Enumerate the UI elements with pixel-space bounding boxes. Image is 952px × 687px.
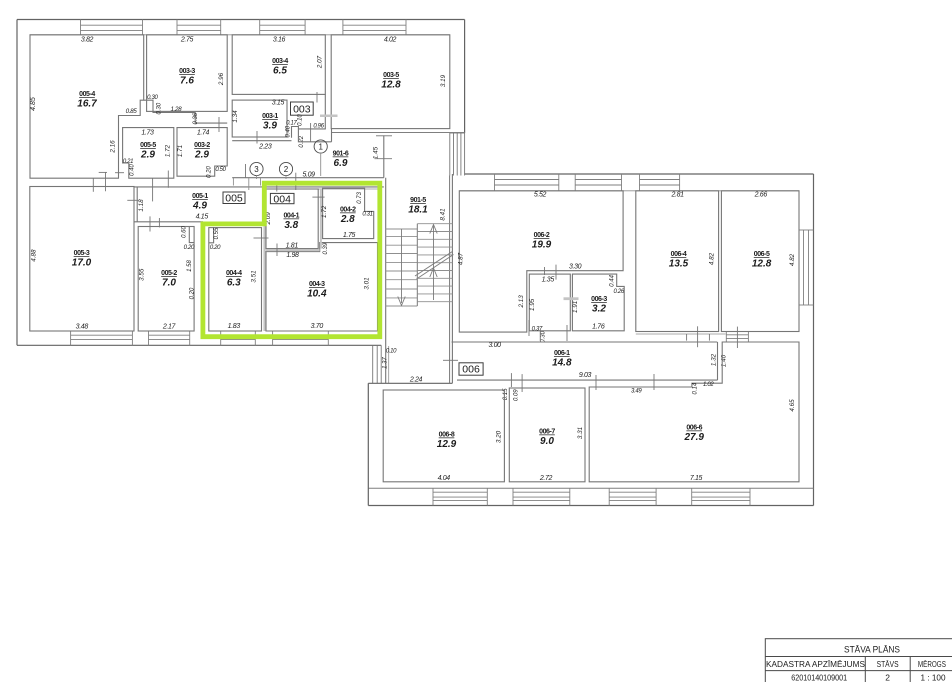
svg-text:5.09: 5.09 bbox=[302, 172, 315, 179]
svg-text:005-4: 005-4 bbox=[79, 91, 95, 98]
svg-text:STĀVA PLĀNS: STĀVA PLĀNS bbox=[844, 645, 900, 656]
svg-text:1.91: 1.91 bbox=[572, 301, 579, 313]
svg-text:1.74: 1.74 bbox=[197, 130, 210, 137]
svg-text:006-7: 006-7 bbox=[539, 429, 555, 436]
svg-text:0.20: 0.20 bbox=[184, 245, 195, 251]
svg-text:0.60: 0.60 bbox=[182, 226, 188, 238]
svg-text:006: 006 bbox=[462, 364, 480, 376]
svg-text:2.13: 2.13 bbox=[518, 295, 525, 309]
svg-text:0.85: 0.85 bbox=[126, 108, 138, 115]
svg-text:2.81: 2.81 bbox=[670, 192, 684, 199]
svg-text:4.9: 4.9 bbox=[192, 200, 207, 211]
svg-text:1.95: 1.95 bbox=[529, 298, 536, 311]
svg-text:003-4: 003-4 bbox=[272, 58, 288, 65]
svg-text:003: 003 bbox=[293, 103, 311, 115]
svg-text:1.73: 1.73 bbox=[141, 130, 154, 137]
svg-text:1.81: 1.81 bbox=[286, 243, 299, 250]
svg-text:2.9: 2.9 bbox=[140, 149, 155, 160]
svg-text:0.20: 0.20 bbox=[210, 245, 221, 251]
svg-text:003-2: 003-2 bbox=[194, 142, 210, 149]
svg-text:0.36: 0.36 bbox=[193, 112, 199, 124]
svg-text:1.58: 1.58 bbox=[187, 260, 193, 272]
svg-text:1.28: 1.28 bbox=[170, 106, 182, 113]
svg-text:2.66: 2.66 bbox=[754, 192, 768, 199]
svg-text:0.40: 0.40 bbox=[130, 164, 136, 176]
svg-text:4.65: 4.65 bbox=[789, 399, 796, 412]
svg-text:16.7: 16.7 bbox=[77, 98, 97, 109]
svg-text:901-5: 901-5 bbox=[410, 197, 426, 204]
svg-text:17.0: 17.0 bbox=[72, 257, 92, 268]
svg-text:KADASTRA APZĪMĒJUMS: KADASTRA APZĪMĒJUMS bbox=[766, 660, 865, 669]
svg-text:4.02: 4.02 bbox=[384, 37, 397, 44]
svg-text:MĒROGS: MĒROGS bbox=[918, 660, 946, 669]
svg-text:3.48: 3.48 bbox=[76, 323, 89, 330]
svg-text:4.04: 4.04 bbox=[438, 475, 451, 482]
svg-text:4.87: 4.87 bbox=[458, 252, 465, 265]
svg-text:62010140109001: 62010140109001 bbox=[791, 672, 847, 682]
svg-text:1.72: 1.72 bbox=[165, 144, 172, 157]
svg-text:1.02: 1.02 bbox=[703, 382, 714, 388]
svg-text:12.8: 12.8 bbox=[381, 79, 401, 90]
svg-text:3: 3 bbox=[254, 165, 259, 174]
svg-text:2.17: 2.17 bbox=[162, 323, 177, 330]
svg-text:3.00: 3.00 bbox=[488, 342, 501, 349]
svg-text:003-5: 003-5 bbox=[383, 72, 399, 79]
svg-text:4.88: 4.88 bbox=[30, 249, 37, 262]
svg-text:004: 004 bbox=[273, 193, 291, 205]
svg-text:003-1: 003-1 bbox=[262, 113, 278, 120]
svg-text:901-6: 901-6 bbox=[333, 151, 349, 158]
svg-text:1.34: 1.34 bbox=[232, 110, 239, 123]
svg-text:2.9: 2.9 bbox=[194, 149, 209, 160]
svg-text:3.16: 3.16 bbox=[273, 37, 286, 44]
svg-text:0.30: 0.30 bbox=[540, 330, 546, 342]
svg-text:1.18: 1.18 bbox=[138, 199, 145, 212]
svg-text:3.19: 3.19 bbox=[440, 74, 447, 87]
svg-text:003-3: 003-3 bbox=[179, 68, 195, 75]
svg-text:006-1: 006-1 bbox=[554, 350, 570, 357]
svg-text:6.9: 6.9 bbox=[334, 158, 348, 169]
svg-text:3.8: 3.8 bbox=[284, 220, 298, 231]
svg-text:0.20: 0.20 bbox=[207, 166, 213, 178]
svg-text:0.31: 0.31 bbox=[362, 211, 372, 217]
svg-text:3.30: 3.30 bbox=[569, 264, 582, 271]
svg-text:005: 005 bbox=[225, 192, 243, 204]
svg-text:9.0: 9.0 bbox=[540, 436, 554, 447]
svg-text:1.76: 1.76 bbox=[592, 324, 605, 331]
svg-text:004-4: 004-4 bbox=[226, 270, 242, 277]
svg-text:3.01: 3.01 bbox=[364, 277, 371, 289]
svg-text:13.5: 13.5 bbox=[669, 258, 689, 269]
svg-text:4.82: 4.82 bbox=[789, 253, 796, 266]
svg-text:2.16: 2.16 bbox=[110, 140, 117, 154]
svg-text:004-1: 004-1 bbox=[283, 213, 299, 220]
svg-text:1.37: 1.37 bbox=[383, 357, 389, 369]
svg-text:10.4: 10.4 bbox=[307, 288, 327, 299]
svg-text:18.1: 18.1 bbox=[408, 204, 428, 215]
svg-text:7.6: 7.6 bbox=[180, 75, 194, 86]
svg-text:006-2: 006-2 bbox=[534, 232, 550, 239]
svg-text:0.17: 0.17 bbox=[286, 120, 297, 126]
svg-text:0.55: 0.55 bbox=[214, 227, 220, 239]
svg-text:3.31: 3.31 bbox=[577, 427, 584, 439]
svg-text:STĀVS: STĀVS bbox=[877, 660, 899, 669]
svg-text:1.71: 1.71 bbox=[177, 145, 184, 157]
svg-text:0.30: 0.30 bbox=[147, 95, 158, 101]
svg-text:2.72: 2.72 bbox=[539, 475, 553, 482]
svg-text:006-3: 006-3 bbox=[591, 296, 607, 303]
svg-text:1: 1 bbox=[318, 142, 323, 151]
svg-text:0.10: 0.10 bbox=[386, 349, 397, 355]
svg-text:006-6: 006-6 bbox=[686, 425, 702, 432]
svg-text:3.9: 3.9 bbox=[263, 120, 277, 131]
svg-text:8.41: 8.41 bbox=[440, 208, 447, 220]
svg-text:1.32: 1.32 bbox=[710, 353, 717, 366]
svg-text:3.82: 3.82 bbox=[81, 37, 94, 44]
svg-text:6.3: 6.3 bbox=[227, 277, 241, 288]
svg-text:6.5: 6.5 bbox=[273, 65, 287, 76]
svg-text:2.8: 2.8 bbox=[340, 214, 355, 225]
svg-text:0.50: 0.50 bbox=[215, 167, 226, 173]
svg-text:0.20: 0.20 bbox=[189, 287, 195, 299]
svg-text:006-4: 006-4 bbox=[671, 251, 687, 258]
svg-text:1.45: 1.45 bbox=[373, 146, 380, 159]
svg-text:2.23: 2.23 bbox=[258, 143, 272, 150]
svg-text:005-1: 005-1 bbox=[192, 193, 208, 200]
svg-text:2: 2 bbox=[885, 672, 890, 682]
svg-text:1.72: 1.72 bbox=[321, 205, 328, 218]
svg-text:0.21: 0.21 bbox=[123, 159, 133, 165]
svg-text:9.03: 9.03 bbox=[579, 372, 592, 379]
svg-text:1.83: 1.83 bbox=[228, 323, 241, 330]
svg-text:3.49: 3.49 bbox=[631, 389, 642, 395]
svg-text:0.73: 0.73 bbox=[357, 191, 363, 203]
svg-text:005-5: 005-5 bbox=[140, 142, 156, 149]
svg-text:004-3: 004-3 bbox=[309, 281, 325, 288]
svg-text:3.15: 3.15 bbox=[272, 99, 285, 106]
svg-text:005-2: 005-2 bbox=[161, 270, 177, 277]
svg-text:2.96: 2.96 bbox=[218, 72, 225, 86]
svg-text:4.85: 4.85 bbox=[30, 97, 37, 111]
svg-text:2.75: 2.75 bbox=[180, 37, 194, 44]
svg-text:006-8: 006-8 bbox=[439, 432, 455, 439]
svg-text:0.26: 0.26 bbox=[614, 289, 625, 295]
svg-text:0.30: 0.30 bbox=[157, 102, 163, 114]
svg-text:12.9: 12.9 bbox=[437, 439, 457, 450]
svg-text:3.55: 3.55 bbox=[139, 268, 146, 281]
svg-text:19.9: 19.9 bbox=[532, 239, 552, 250]
svg-text:1.75: 1.75 bbox=[343, 232, 356, 239]
svg-text:0.14: 0.14 bbox=[693, 382, 699, 394]
svg-text:2: 2 bbox=[284, 165, 289, 174]
svg-text:3.20: 3.20 bbox=[496, 430, 503, 443]
svg-text:1 : 100: 1 : 100 bbox=[921, 672, 946, 682]
svg-text:14.8: 14.8 bbox=[552, 357, 572, 368]
svg-text:3.51: 3.51 bbox=[250, 270, 257, 282]
svg-text:7.15: 7.15 bbox=[690, 475, 703, 482]
svg-text:7.0: 7.0 bbox=[162, 277, 176, 288]
svg-text:0.39: 0.39 bbox=[323, 242, 329, 254]
svg-text:006-5: 006-5 bbox=[754, 251, 770, 258]
svg-text:2.24: 2.24 bbox=[409, 377, 423, 384]
svg-text:5.52: 5.52 bbox=[534, 192, 547, 199]
svg-text:3.70: 3.70 bbox=[311, 323, 324, 330]
svg-text:1.35: 1.35 bbox=[542, 276, 555, 283]
svg-text:0.40: 0.40 bbox=[285, 125, 291, 137]
svg-text:2.07: 2.07 bbox=[317, 55, 324, 69]
svg-text:0.09: 0.09 bbox=[514, 389, 520, 401]
svg-text:1.98: 1.98 bbox=[286, 252, 299, 259]
svg-text:005-3: 005-3 bbox=[74, 250, 90, 257]
svg-text:4.82: 4.82 bbox=[709, 252, 716, 265]
svg-text:3.2: 3.2 bbox=[592, 303, 606, 314]
svg-text:004-2: 004-2 bbox=[340, 207, 356, 214]
svg-text:27.9: 27.9 bbox=[683, 432, 704, 443]
svg-text:4.15: 4.15 bbox=[196, 213, 209, 220]
svg-text:0.44: 0.44 bbox=[609, 274, 615, 286]
svg-text:12.8: 12.8 bbox=[752, 258, 772, 269]
